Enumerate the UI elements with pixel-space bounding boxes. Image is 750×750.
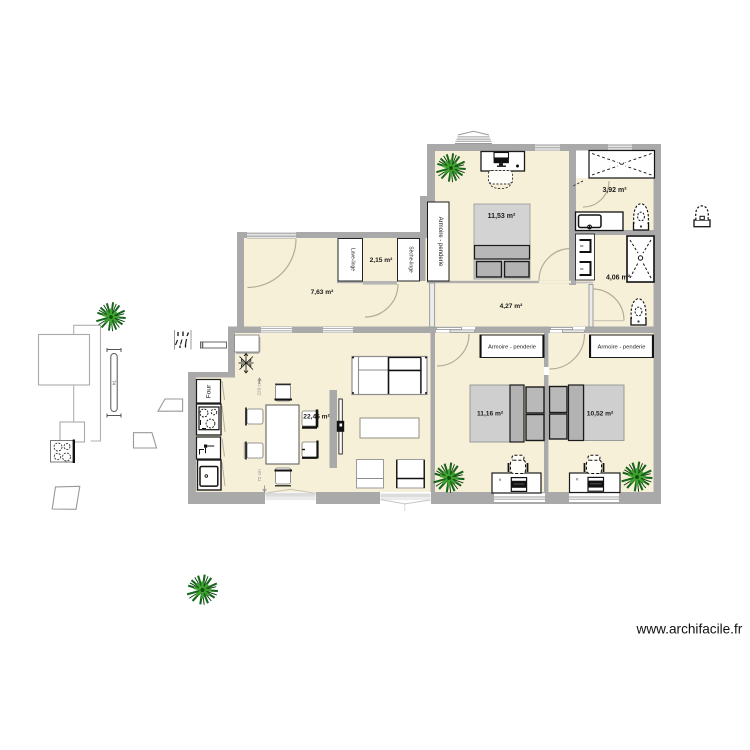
svg-text:11,16 m²: 11,16 m² — [477, 411, 504, 418]
svg-text:Armoire - penderie: Armoire - penderie — [437, 217, 443, 267]
svg-text:4,27 m²: 4,27 m² — [500, 303, 524, 310]
svg-text:Armoire - penderie: Armoire - penderie — [488, 345, 536, 351]
svg-text:Sèche-linge: Sèche-linge — [408, 246, 414, 273]
svg-text:10,52 m²: 10,52 m² — [587, 411, 614, 418]
svg-text:www.archifacile.fr: www.archifacile.fr — [636, 622, 743, 637]
svg-text:11,53 m²: 11,53 m² — [488, 213, 516, 220]
svg-text:220 cm: 220 cm — [257, 380, 262, 395]
svg-text:Lave-linge: Lave-linge — [350, 248, 356, 271]
svg-text:72 cm: 72 cm — [257, 469, 262, 482]
svg-text:Armoire - penderie: Armoire - penderie — [597, 345, 645, 351]
svg-text:Four: Four — [206, 384, 213, 398]
svg-text:4,06 m²: 4,06 m² — [606, 275, 631, 282]
svg-text:2,15 m²: 2,15 m² — [370, 257, 394, 264]
svg-text:74: 74 — [112, 380, 117, 385]
svg-text:3,92 m²: 3,92 m² — [602, 187, 627, 194]
svg-text:7,63 m²: 7,63 m² — [311, 289, 335, 296]
